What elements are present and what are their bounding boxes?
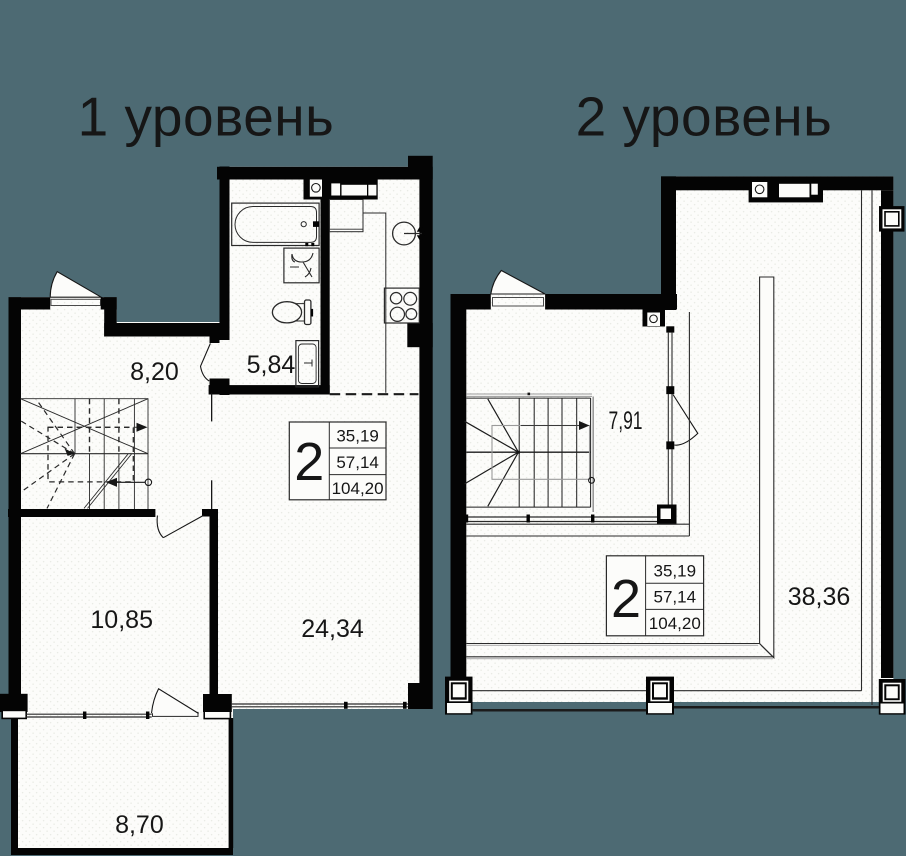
svg-text:104,20: 104,20 [332,479,384,498]
svg-text:8,70: 8,70 [115,811,164,839]
svg-text:5,84: 5,84 [247,351,296,379]
svg-text:35,19: 35,19 [336,427,379,446]
svg-text:57,14: 57,14 [336,453,379,472]
svg-text:10,85: 10,85 [90,606,153,634]
svg-text:7,91: 7,91 [609,407,643,435]
svg-text:1 уровень: 1 уровень [78,86,335,148]
svg-text:8,20: 8,20 [130,358,179,386]
svg-text:104,20: 104,20 [649,614,701,633]
svg-text:24,34: 24,34 [301,615,364,643]
svg-text:57,14: 57,14 [654,588,697,607]
svg-text:38,36: 38,36 [788,583,851,611]
svg-text:2: 2 [611,569,641,629]
svg-text:2 уровень: 2 уровень [576,86,833,148]
svg-text:35,19: 35,19 [654,561,697,580]
svg-text:2: 2 [294,432,324,492]
